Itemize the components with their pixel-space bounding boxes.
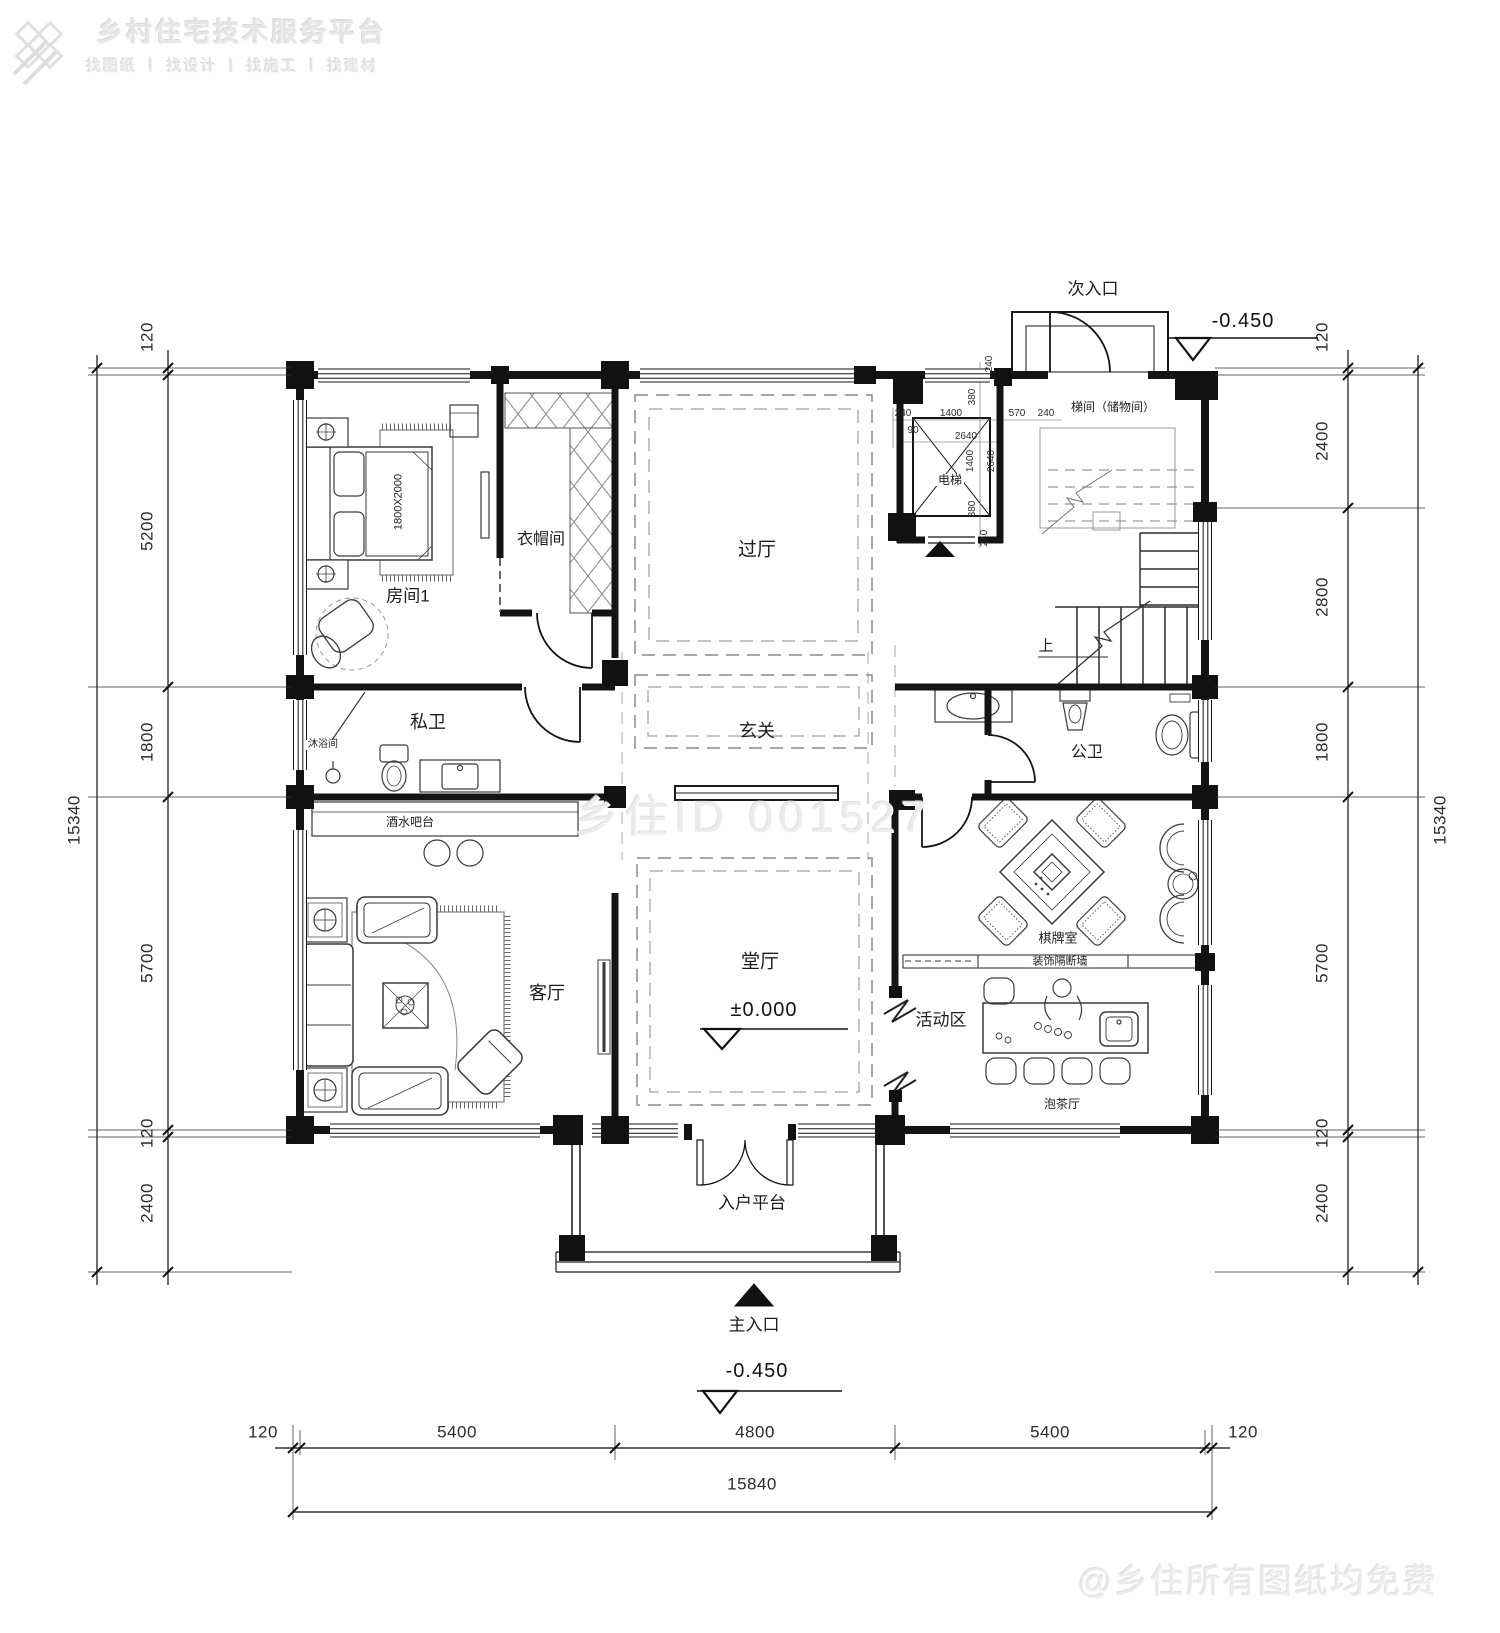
- public-bath-fixtures: [935, 689, 1203, 758]
- dim-left-2: 1800: [139, 722, 156, 762]
- watermark-center: 乡住ID 001527: [574, 796, 931, 840]
- sofa-left: [303, 944, 353, 1066]
- dim-shaft-6: 90: [907, 426, 918, 436]
- cloakroom-shelving: [505, 393, 613, 613]
- dim-shaft-5: 240: [1038, 409, 1055, 419]
- dim-shaft-7: 2640: [955, 432, 977, 442]
- level-main-entrance: [697, 1391, 842, 1413]
- room-label-shower: 沐浴间: [306, 740, 340, 750]
- armchair-top: [357, 897, 437, 943]
- main-entrance-arrow: [735, 1284, 773, 1306]
- dim-shaft-1: 240: [895, 409, 912, 419]
- room-label-public-bath: 公卫: [1071, 745, 1103, 761]
- lounge-chair-diagonal: [455, 1027, 526, 1098]
- brand-tagline: 找图纸 丨 找设计 丨 找施工 丨 找建材: [86, 59, 378, 74]
- bed: [306, 447, 432, 560]
- shower-drain: [326, 769, 340, 783]
- dim-left-3: 5700: [139, 943, 156, 983]
- sofa-bottom: [352, 1067, 448, 1115]
- dim-shaft-4: 570: [1009, 409, 1026, 419]
- dim-right-1: 2400: [1314, 421, 1331, 461]
- level-value-main-entrance: -0.450: [726, 1361, 789, 1381]
- room-label-private-bath: 私卫: [410, 713, 446, 731]
- room-label-main-entrance: 主入口: [729, 1317, 780, 1334]
- dim-left-1: 5200: [139, 511, 156, 551]
- room-label-tea-room: 泡茶厅: [1044, 1098, 1080, 1110]
- bedroom-furniture: [304, 405, 489, 673]
- tea-stool: [1062, 1058, 1092, 1084]
- brand-logo-icon: [14, 23, 61, 84]
- dim-left-total: 15340: [66, 795, 83, 845]
- door-public-bath: [988, 735, 1035, 782]
- bar-counter: [312, 802, 578, 866]
- tv-panel: [481, 472, 489, 538]
- tea-stool: [986, 1058, 1016, 1084]
- dim-bottom-1: 5400: [437, 1424, 477, 1441]
- bedroom-chair: [306, 596, 388, 674]
- dim-left-5: 2400: [139, 1183, 156, 1223]
- private-bath-fixtures: [326, 692, 500, 792]
- mahjong-chair: [977, 797, 1029, 849]
- room-label-foyer: 玄关: [739, 722, 775, 740]
- room-label-entry-platform: 入户平台: [718, 1195, 786, 1212]
- bar-stool: [424, 840, 450, 866]
- break-line: [1058, 601, 1150, 684]
- dim-right-total: 15340: [1432, 795, 1449, 845]
- entry-steps: [556, 1252, 900, 1272]
- room-label-mahjong-room: 棋牌室: [1038, 932, 1077, 945]
- mahjong-chair: [977, 895, 1029, 947]
- door-private-bath: [525, 687, 580, 742]
- dim-shaft-0: 240: [985, 356, 995, 373]
- door-main-double: [697, 1140, 793, 1185]
- dim-right-5: 120: [1314, 1118, 1331, 1148]
- tea-stool: [984, 978, 1014, 1004]
- mahjong-furniture: [977, 797, 1198, 947]
- dim-right-0: 120: [1314, 322, 1331, 352]
- dim-bottom-3: 5400: [1030, 1424, 1070, 1441]
- dim-bottom-2: 4800: [735, 1424, 775, 1441]
- dim-right-3: 1800: [1314, 722, 1331, 762]
- room-label-stair-storage: 梯间（储物间）: [1071, 401, 1155, 413]
- dim-right-6: 2400: [1314, 1183, 1331, 1223]
- dim-left-0: 120: [139, 322, 156, 352]
- dim-bottom-4: 120: [1228, 1424, 1258, 1441]
- squat-toilet: [1060, 689, 1090, 730]
- stairs-upper-dashed: [1048, 470, 1203, 521]
- tea-stool: [1024, 1058, 1054, 1084]
- level-value-main-hall: ±0.000: [730, 1000, 797, 1020]
- break-line: [1042, 470, 1112, 534]
- sink: [935, 690, 1012, 722]
- dim-shaft-11: 240: [980, 530, 990, 547]
- brand-title: 乡村住宅技术服务平台: [97, 19, 387, 45]
- secondary-entrance-platform: [1012, 312, 1168, 372]
- tea-room-furniture: [983, 978, 1148, 1084]
- level-secondary-entrance: [1168, 338, 1318, 360]
- stairs: [1038, 428, 1203, 684]
- room-label-bedroom1: 房间1: [386, 588, 429, 605]
- dimension-ticks: [92, 363, 1423, 1517]
- vanity: [420, 760, 500, 792]
- toilet: [1156, 694, 1203, 758]
- dim-shaft-8: 1400: [966, 450, 976, 472]
- dim-bottom-0: 120: [248, 1424, 278, 1441]
- dim-bottom-total: 15840: [727, 1476, 777, 1493]
- dresser: [450, 405, 478, 437]
- wall-break-symbols: [884, 1000, 916, 1094]
- room-label-cloakroom: 衣帽间: [515, 532, 567, 548]
- lounge-set: [1160, 824, 1198, 943]
- dimension-lines: [88, 350, 1425, 1520]
- dim-shaft-10: 380: [968, 501, 978, 518]
- watermark-corner: @乡住所有图纸均免费: [1078, 1565, 1439, 1599]
- floorplan-sheet: 乡村住宅技术服务平台 找图纸 丨 找设计 丨 找施工 丨 找建材 乡住ID 00…: [0, 0, 1500, 1633]
- living-room-furniture: [303, 897, 610, 1115]
- dim-shaft-9: 2640: [987, 450, 997, 472]
- tea-stool: [1100, 1058, 1130, 1084]
- level-main-hall: [700, 1029, 848, 1049]
- coffee-table: [383, 983, 428, 1028]
- room-label-bar: 酒水吧台: [384, 816, 436, 828]
- room-label-elevator: 电梯: [936, 474, 964, 486]
- room-label-hallway: 过厅: [738, 541, 776, 560]
- door-bedroom: [537, 613, 592, 668]
- dim-right-4: 5700: [1314, 943, 1331, 983]
- shower-partition: [332, 692, 365, 740]
- toilet: [380, 745, 408, 791]
- bed-size-label: 1800X2000: [394, 474, 405, 530]
- room-label-activity-area: 活动区: [916, 1012, 967, 1029]
- bar-stool: [457, 840, 483, 866]
- stairs-up-label: 上: [1038, 639, 1053, 654]
- dim-right-2: 2800: [1314, 577, 1331, 617]
- level-value-secondary-entrance: -0.450: [1212, 311, 1275, 331]
- mahjong-chair: [1075, 797, 1127, 849]
- dim-shaft-2: 1400: [940, 409, 962, 419]
- label-partition-wall: 装饰隔断墙: [1031, 957, 1090, 968]
- dim-shaft-3: 380: [968, 389, 978, 406]
- mahjong-chair: [1075, 895, 1127, 947]
- door-secondary-entrance: [1048, 312, 1148, 372]
- dim-left-4: 120: [139, 1118, 156, 1148]
- room-label-living-room: 客厅: [529, 984, 565, 1002]
- room-label-secondary-entrance: 次入口: [1068, 281, 1119, 298]
- room-label-main-hall: 堂厅: [741, 953, 779, 972]
